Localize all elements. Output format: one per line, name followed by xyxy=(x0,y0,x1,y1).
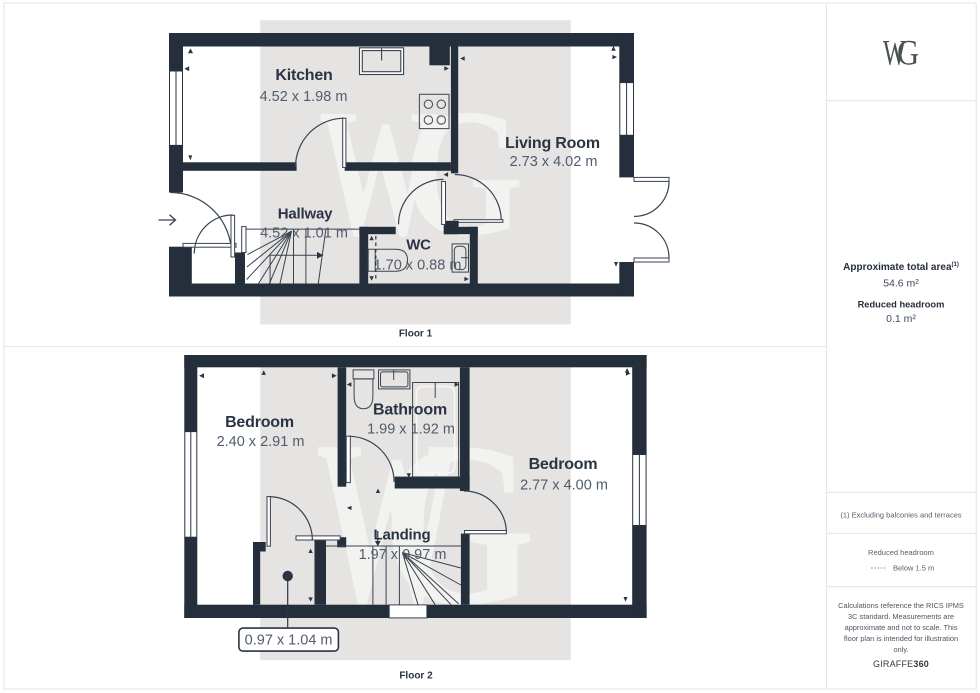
svg-text:2.73 x 4.02 m: 2.73 x 4.02 m xyxy=(510,154,598,170)
svg-text:WC: WC xyxy=(406,237,431,254)
svg-text:G: G xyxy=(897,33,919,73)
svg-text:2.77 x 4.00 m: 2.77 x 4.00 m xyxy=(520,478,608,494)
svg-text:4.52 x 1.98 m: 4.52 x 1.98 m xyxy=(260,89,348,105)
svg-text:only.: only. xyxy=(893,645,908,654)
svg-text:Bedroom: Bedroom xyxy=(225,414,294,431)
svg-text:Bathroom: Bathroom xyxy=(373,402,447,419)
svg-text:GIRAFFE360: GIRAFFE360 xyxy=(873,659,929,669)
svg-text:0.97 x 1.04 m: 0.97 x 1.04 m xyxy=(245,633,333,649)
svg-text:Living Room: Living Room xyxy=(505,135,600,152)
svg-text:Approximate total area(1): Approximate total area(1) xyxy=(843,262,959,273)
svg-text:Kitchen: Kitchen xyxy=(275,67,332,84)
svg-text:Hallway: Hallway xyxy=(278,206,333,223)
svg-text:Below 1.5 m: Below 1.5 m xyxy=(893,564,934,573)
svg-text:Landing: Landing xyxy=(374,527,431,544)
svg-text:approximate and not to scale.: approximate and not to scale. This xyxy=(845,623,958,632)
svg-text:Floor 1: Floor 1 xyxy=(399,328,433,339)
svg-text:Calculations reference the RIC: Calculations reference the RICS IPMS xyxy=(838,601,964,610)
svg-text:3C standard. Measurements are: 3C standard. Measurements are xyxy=(848,612,954,621)
svg-text:(1) Excluding balconies and te: (1) Excluding balconies and terraces xyxy=(840,511,962,520)
svg-text:1.97 x 0.97 m: 1.97 x 0.97 m xyxy=(359,547,447,563)
svg-text:2.40 x 2.91 m: 2.40 x 2.91 m xyxy=(217,434,305,450)
svg-text:Floor 2: Floor 2 xyxy=(399,671,433,682)
svg-text:Reduced headroom: Reduced headroom xyxy=(868,548,934,557)
svg-text:floor plan is intended for ill: floor plan is intended for illustration xyxy=(844,634,958,643)
svg-text:1.70 x 0.88 m: 1.70 x 0.88 m xyxy=(374,258,462,274)
svg-text:54.6 m²: 54.6 m² xyxy=(883,278,919,290)
svg-text:0.1 m²: 0.1 m² xyxy=(886,313,916,325)
svg-text:4.52 x 1.01 m: 4.52 x 1.01 m xyxy=(260,226,348,242)
svg-text:Bedroom: Bedroom xyxy=(529,456,598,473)
svg-text:1.99 x 1.92 m: 1.99 x 1.92 m xyxy=(367,422,455,438)
svg-text:Reduced headroom: Reduced headroom xyxy=(858,300,945,310)
